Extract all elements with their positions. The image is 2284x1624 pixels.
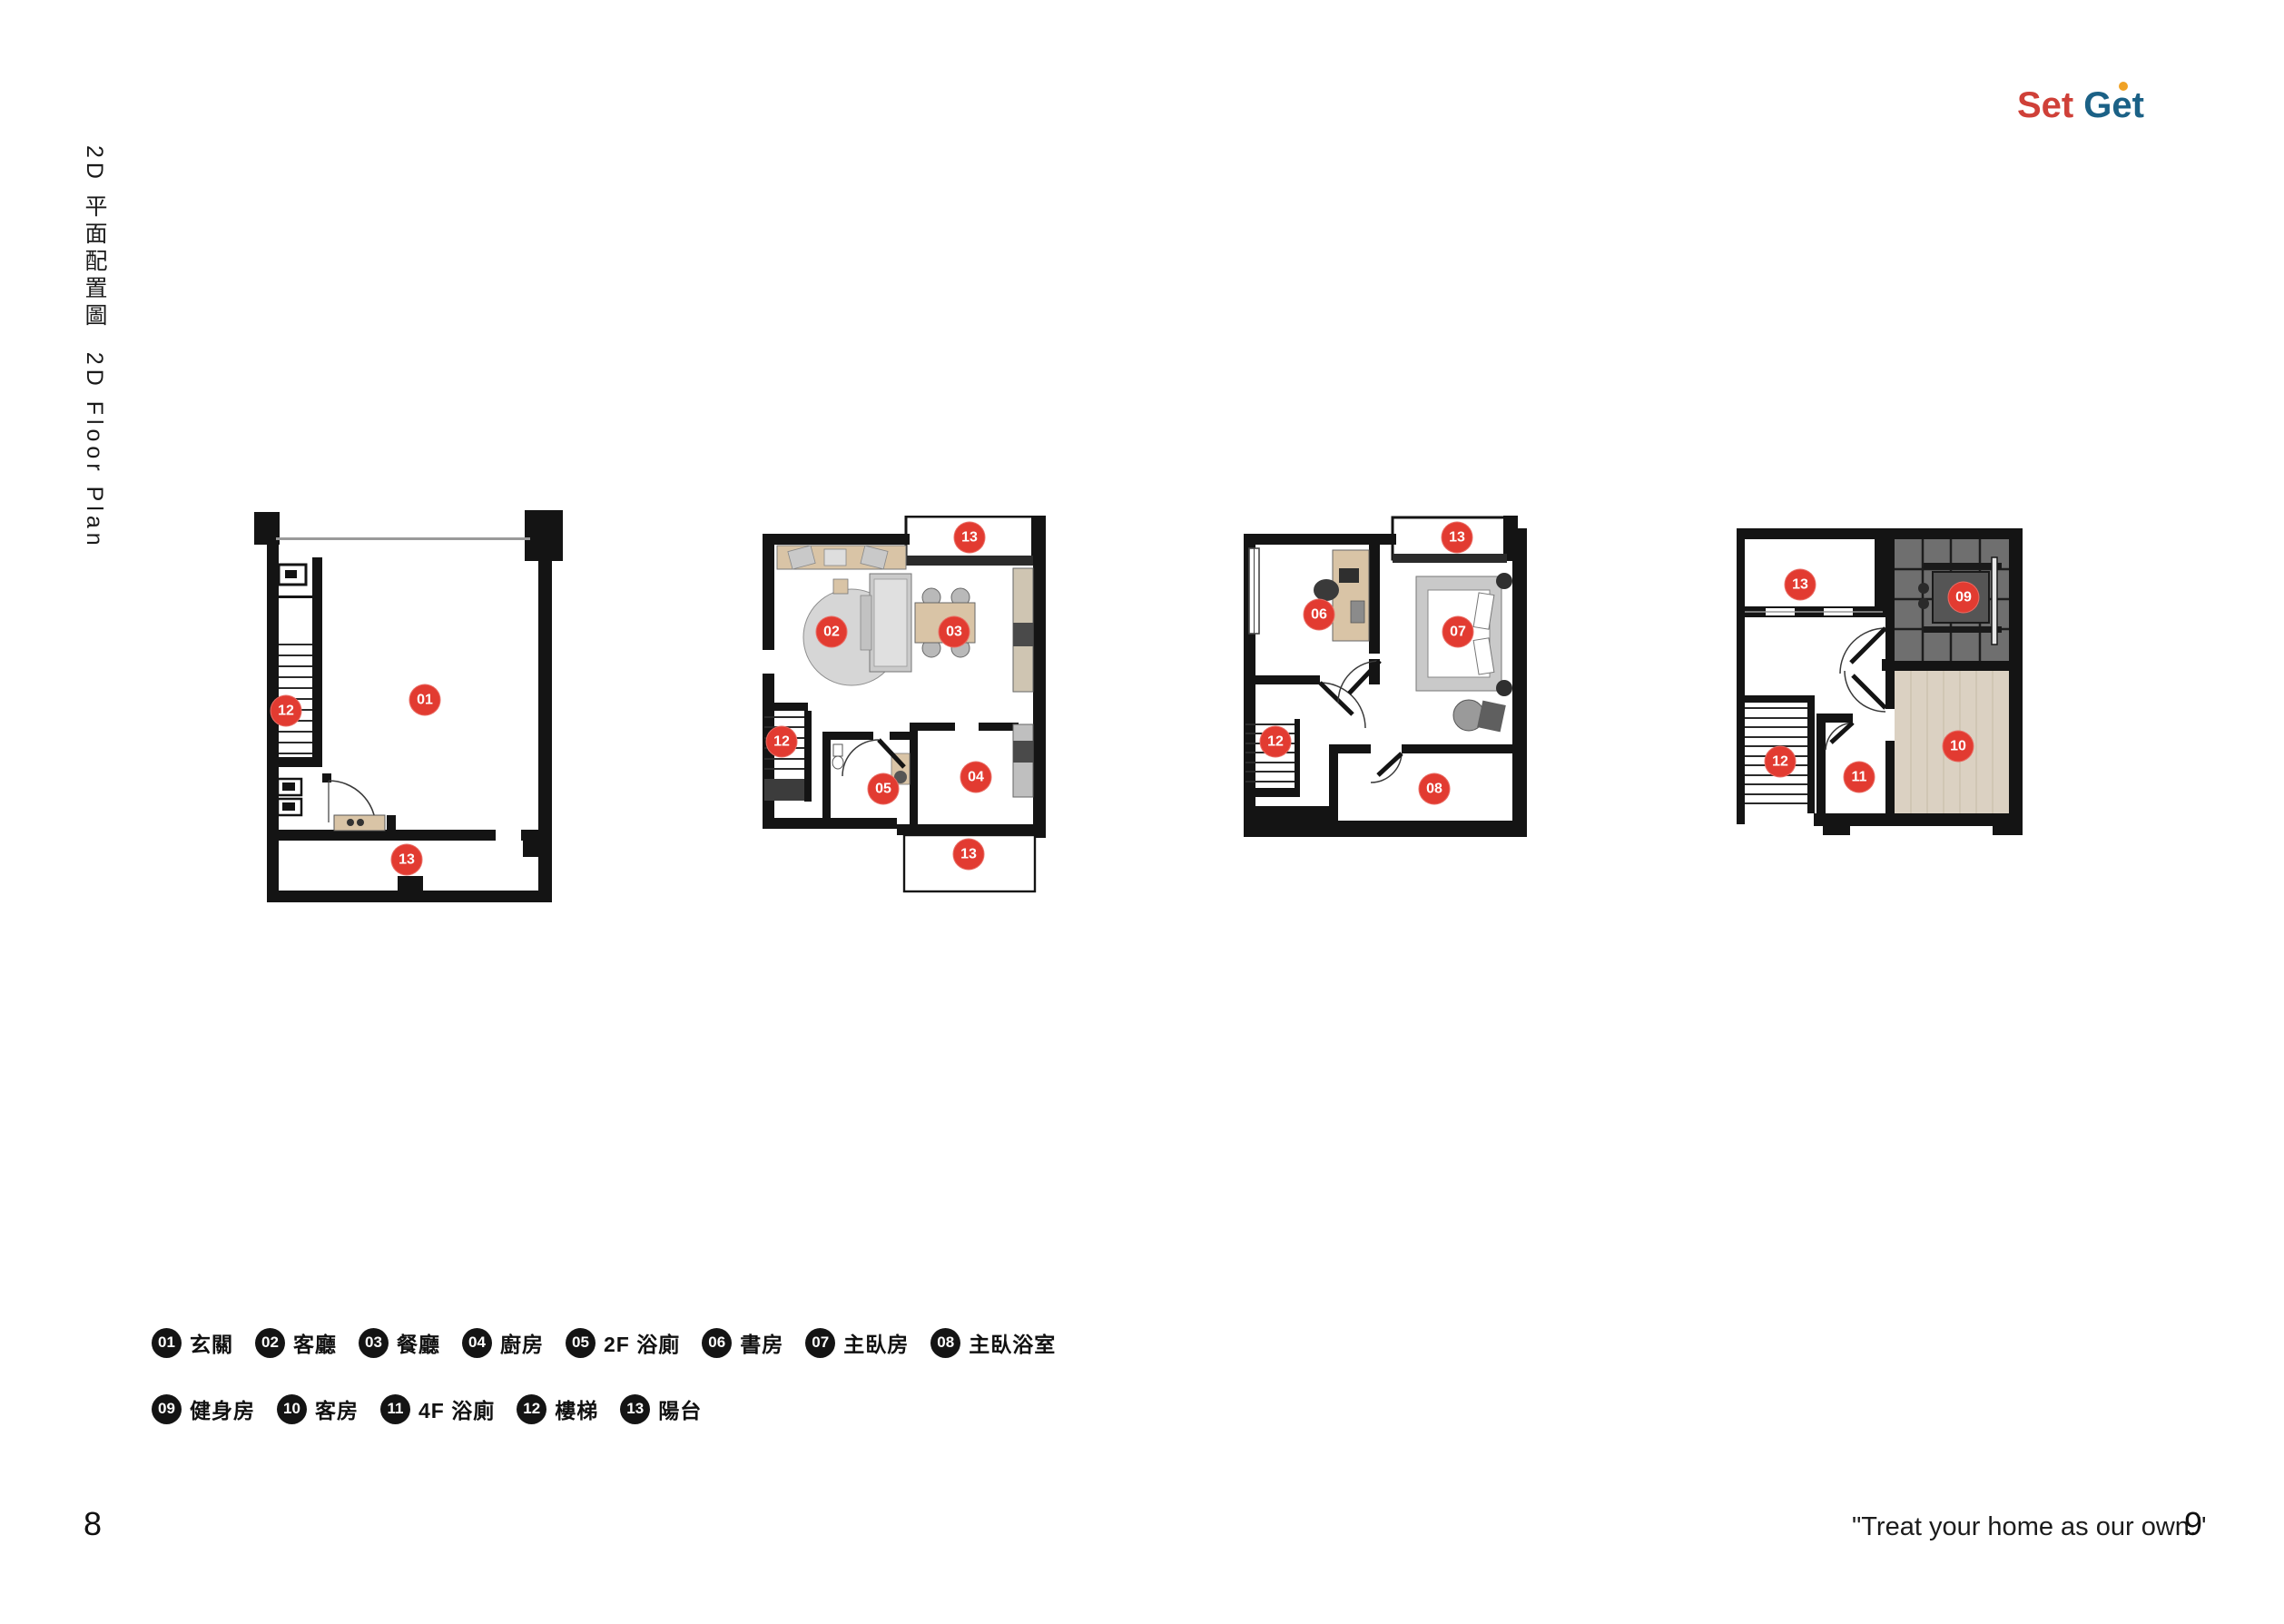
legend-item-08: 08主臥浴室: [930, 1327, 1056, 1358]
brand-logo: Set Get: [2017, 87, 2144, 123]
legend-item-13: 13陽台: [620, 1393, 702, 1424]
floor-plan-3-drawing: [1242, 516, 1532, 853]
room-marker-02: 02: [816, 616, 848, 648]
room-marker-07: 07: [1442, 616, 1474, 648]
legend-item-05: 052F 浴廁: [566, 1327, 680, 1358]
legend-number-badge: 02: [255, 1328, 285, 1358]
legend-item-02: 02客廳: [255, 1327, 337, 1358]
room-marker-09: 09: [1948, 582, 1980, 614]
page-number-right: 9: [2184, 1505, 2202, 1543]
room-marker-08: 08: [1419, 773, 1451, 805]
legend-label: 餐廳: [397, 1327, 440, 1358]
legend-number-badge: 03: [359, 1328, 389, 1358]
legend-item-09: 09健身房: [152, 1393, 255, 1424]
legend-number-badge: 01: [152, 1328, 182, 1358]
legend-item-06: 06書房: [702, 1327, 783, 1358]
legend-label: 陽台: [658, 1393, 702, 1424]
legend-item-01: 01玄關: [152, 1327, 233, 1358]
legend-label: 樓梯: [555, 1393, 598, 1424]
room-marker-13: 13: [1442, 522, 1473, 554]
legend-label: 玄關: [190, 1327, 233, 1358]
legend-label: 健身房: [190, 1393, 255, 1424]
floor-plan-2-drawing: [753, 516, 1058, 897]
room-marker-03: 03: [939, 616, 970, 648]
room-marker-01: 01: [409, 684, 441, 716]
legend-number-badge: 10: [277, 1394, 307, 1424]
legend-row-2: 09健身房10客房114F 浴廁12樓梯13陽台: [152, 1393, 702, 1424]
room-marker-06: 06: [1304, 599, 1335, 631]
floor-plan-2: 13020312050413: [753, 516, 1058, 897]
legend-item-11: 114F 浴廁: [380, 1393, 495, 1424]
legend-item-12: 12樓梯: [517, 1393, 598, 1424]
legend-label: 客廳: [293, 1327, 337, 1358]
legend-number-badge: 11: [380, 1394, 410, 1424]
floor-plan-4: 1309121110: [1737, 516, 2050, 844]
legend-row-1: 01玄關02客廳03餐廳04廚房052F 浴廁06書房07主臥房08主臥浴室: [152, 1327, 1056, 1358]
room-marker-12: 12: [271, 695, 302, 727]
legend-number-badge: 05: [566, 1328, 596, 1358]
floor-plan-1: 120113: [254, 510, 563, 917]
legend-label: 書房: [740, 1327, 783, 1358]
room-marker-13: 13: [1785, 569, 1816, 601]
page-number-left: 8: [84, 1505, 102, 1543]
legend-label: 主臥浴室: [969, 1327, 1056, 1358]
floor-plan-4-drawing: [1737, 516, 2050, 844]
legend-number-badge: 08: [930, 1328, 960, 1358]
legend-item-03: 03餐廳: [359, 1327, 440, 1358]
footer-quote: "Treat your home as our own.": [1852, 1512, 2206, 1542]
legend-number-badge: 09: [152, 1394, 182, 1424]
legend-number-badge: 04: [462, 1328, 492, 1358]
legend-number-badge: 07: [805, 1328, 835, 1358]
room-marker-13: 13: [391, 844, 423, 876]
room-marker-13: 13: [954, 522, 986, 554]
legend-number-badge: 06: [702, 1328, 732, 1358]
legend-item-04: 04廚房: [462, 1327, 544, 1358]
legend-label: 客房: [315, 1393, 359, 1424]
legend-item-07: 07主臥房: [805, 1327, 909, 1358]
room-marker-13: 13: [953, 839, 985, 871]
room-marker-12: 12: [1765, 746, 1797, 778]
legend-item-10: 10客房: [277, 1393, 359, 1424]
room-marker-11: 11: [1844, 762, 1875, 793]
logo-set-text: Set: [2017, 87, 2073, 123]
legend-label: 4F 浴廁: [418, 1393, 495, 1424]
room-marker-12: 12: [1260, 726, 1292, 758]
page-title: 2D 平面配置圖 2D Floor Plan: [78, 145, 111, 550]
legend-label: 主臥房: [843, 1327, 909, 1358]
legend-label: 2F 浴廁: [604, 1327, 680, 1358]
legend-number-badge: 13: [620, 1394, 650, 1424]
room-marker-12: 12: [766, 726, 798, 758]
legend-label: 廚房: [500, 1327, 544, 1358]
room-marker-04: 04: [960, 762, 992, 793]
logo-get-text: Get: [2083, 85, 2144, 125]
floor-plan-3: 1306071208: [1242, 516, 1532, 853]
room-marker-05: 05: [868, 773, 900, 805]
logo-get-wrap: Get: [2083, 87, 2144, 123]
room-marker-10: 10: [1943, 731, 1974, 763]
legend-number-badge: 12: [517, 1394, 546, 1424]
